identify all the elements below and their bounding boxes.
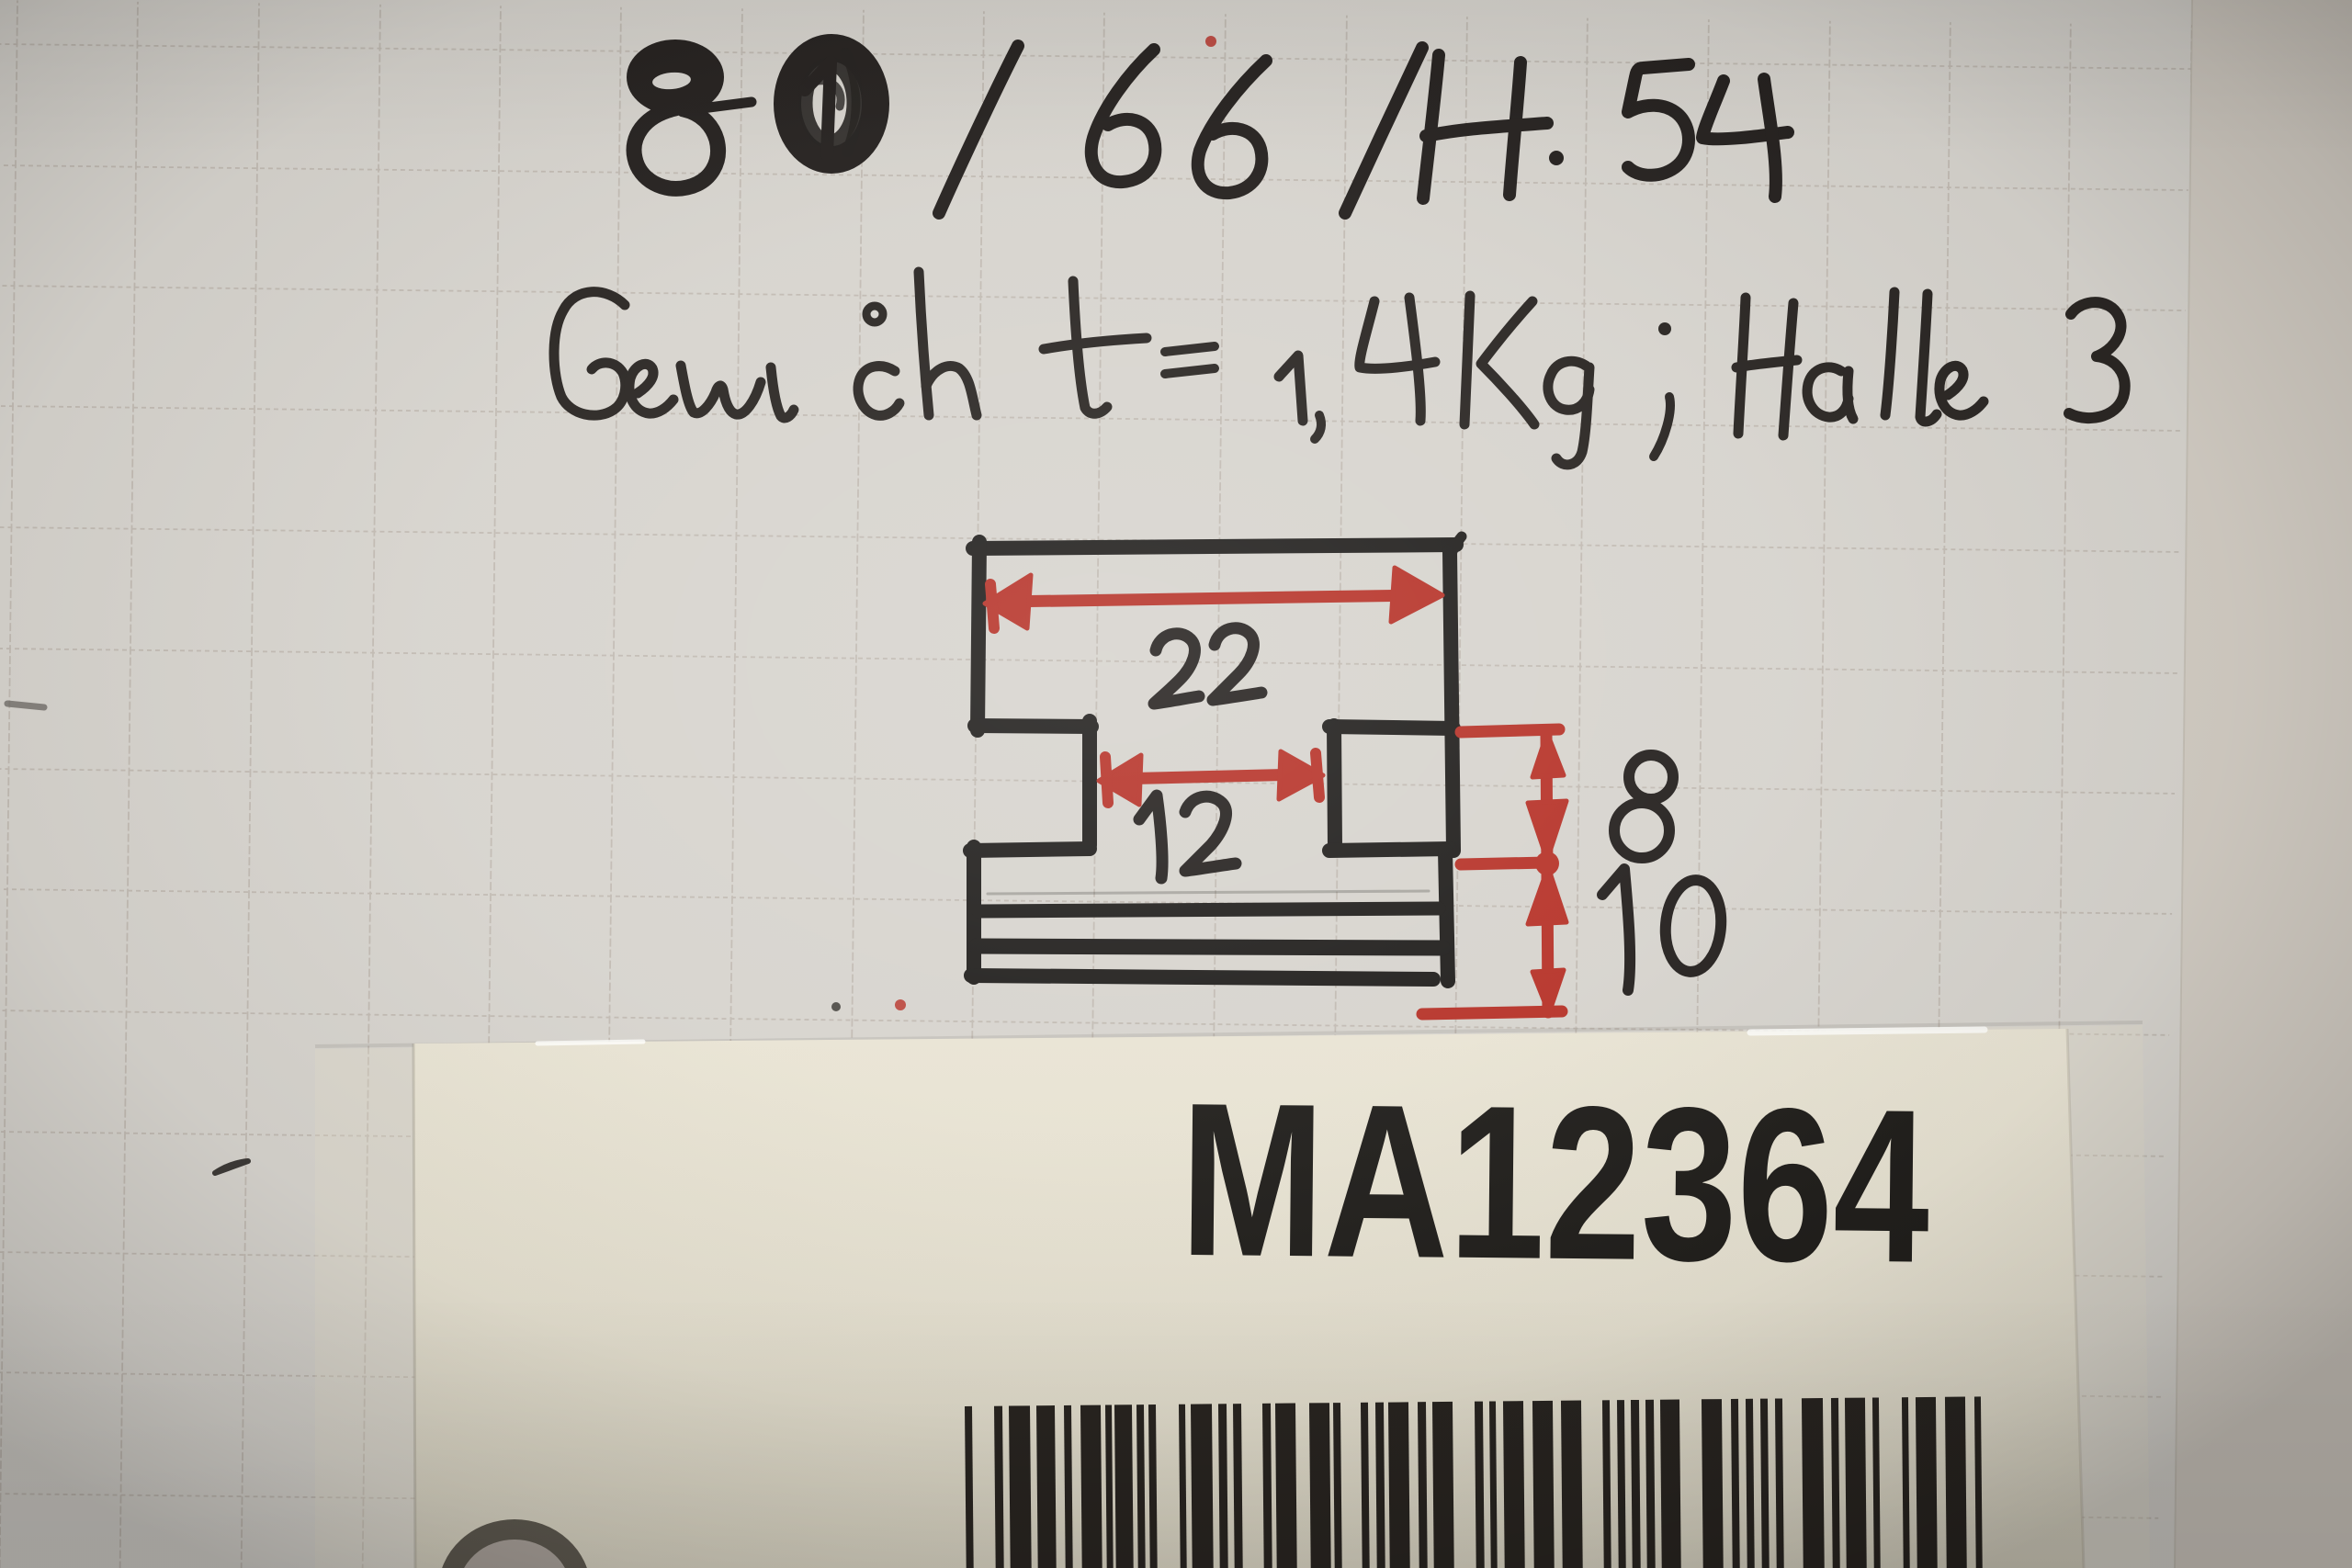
svg-text:MA12364: MA12364	[1180, 1058, 1931, 1309]
